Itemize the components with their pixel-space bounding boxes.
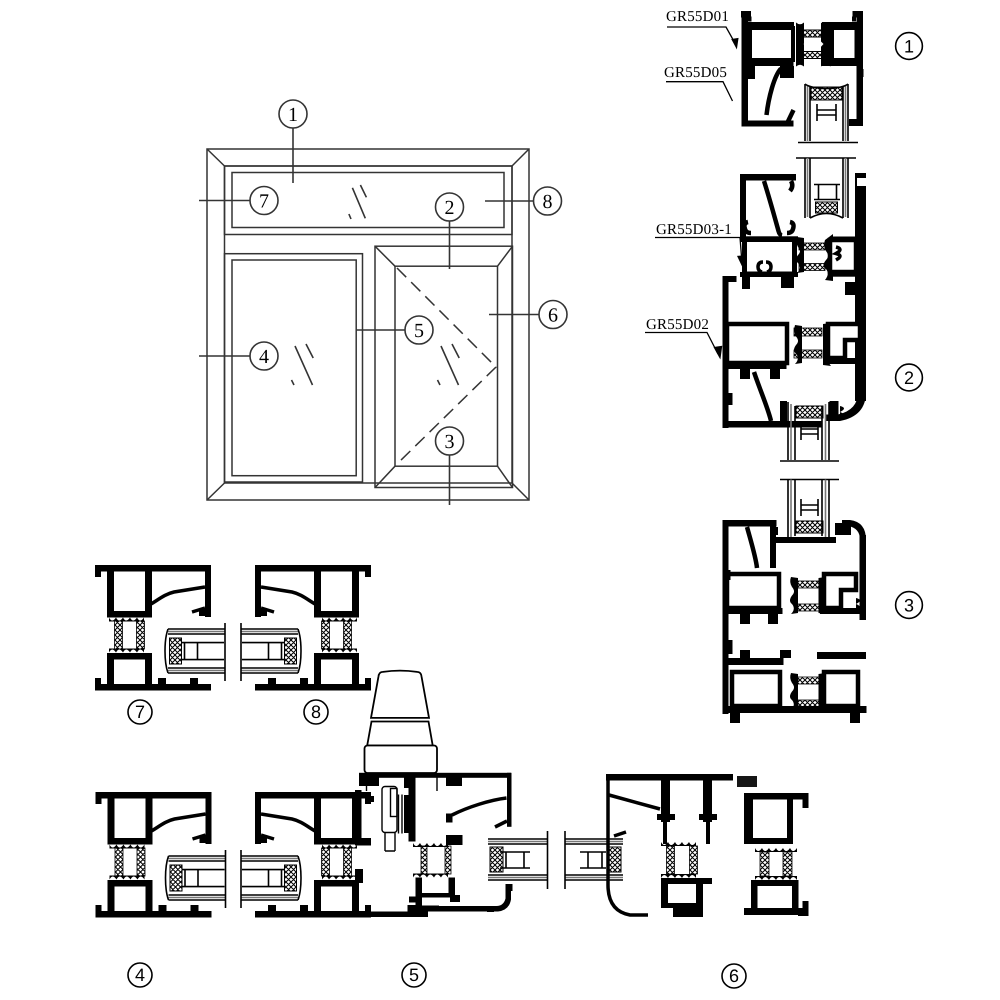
svg-text:5: 5 — [414, 320, 424, 342]
svg-text:7: 7 — [259, 191, 269, 213]
svg-text:1: 1 — [904, 37, 914, 57]
svg-text:GR55D02: GR55D02 — [646, 317, 709, 333]
svg-text:GR55D01: GR55D01 — [666, 9, 729, 25]
svg-text:3: 3 — [445, 431, 455, 453]
svg-text:3: 3 — [904, 596, 914, 616]
svg-text:8: 8 — [543, 191, 553, 213]
svg-text:4: 4 — [135, 965, 145, 985]
svg-text:8: 8 — [311, 702, 321, 722]
svg-text:6: 6 — [729, 966, 739, 986]
svg-text:GR55D05: GR55D05 — [664, 65, 727, 81]
svg-text:GR55D03-1: GR55D03-1 — [656, 222, 732, 238]
svg-text:6: 6 — [548, 305, 558, 327]
svg-text:2: 2 — [445, 197, 455, 219]
svg-text:4: 4 — [259, 346, 269, 368]
svg-text:5: 5 — [409, 965, 419, 985]
svg-text:7: 7 — [135, 702, 145, 722]
svg-text:2: 2 — [904, 368, 914, 388]
svg-text:1: 1 — [288, 104, 298, 126]
